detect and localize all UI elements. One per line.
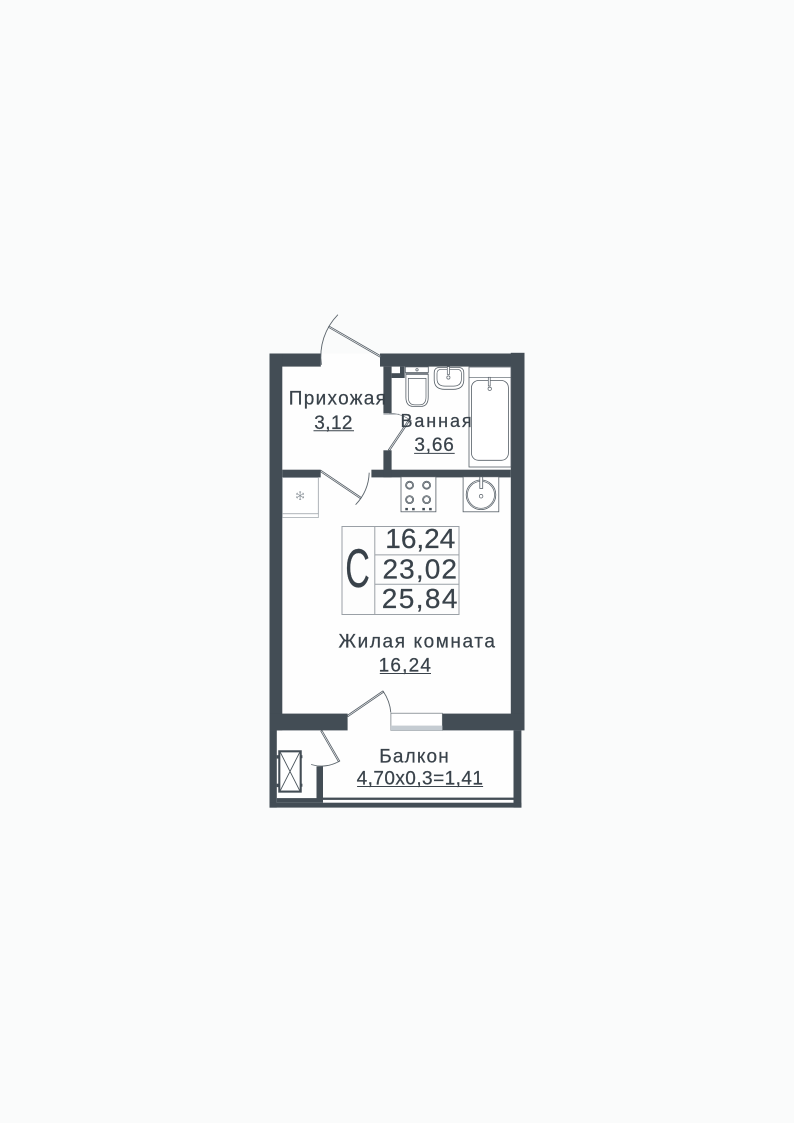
svg-text:Ванная: Ванная: [400, 411, 473, 431]
svg-text:С: С: [345, 538, 370, 599]
svg-text:23,02: 23,02: [383, 554, 459, 585]
svg-text:Жилая комната: Жилая комната: [338, 632, 496, 653]
svg-text:25,84: 25,84: [382, 583, 459, 614]
svg-text:16,24: 16,24: [385, 523, 455, 554]
svg-text:Прихожая: Прихожая: [289, 388, 387, 409]
svg-text:Балкон: Балкон: [379, 746, 450, 767]
